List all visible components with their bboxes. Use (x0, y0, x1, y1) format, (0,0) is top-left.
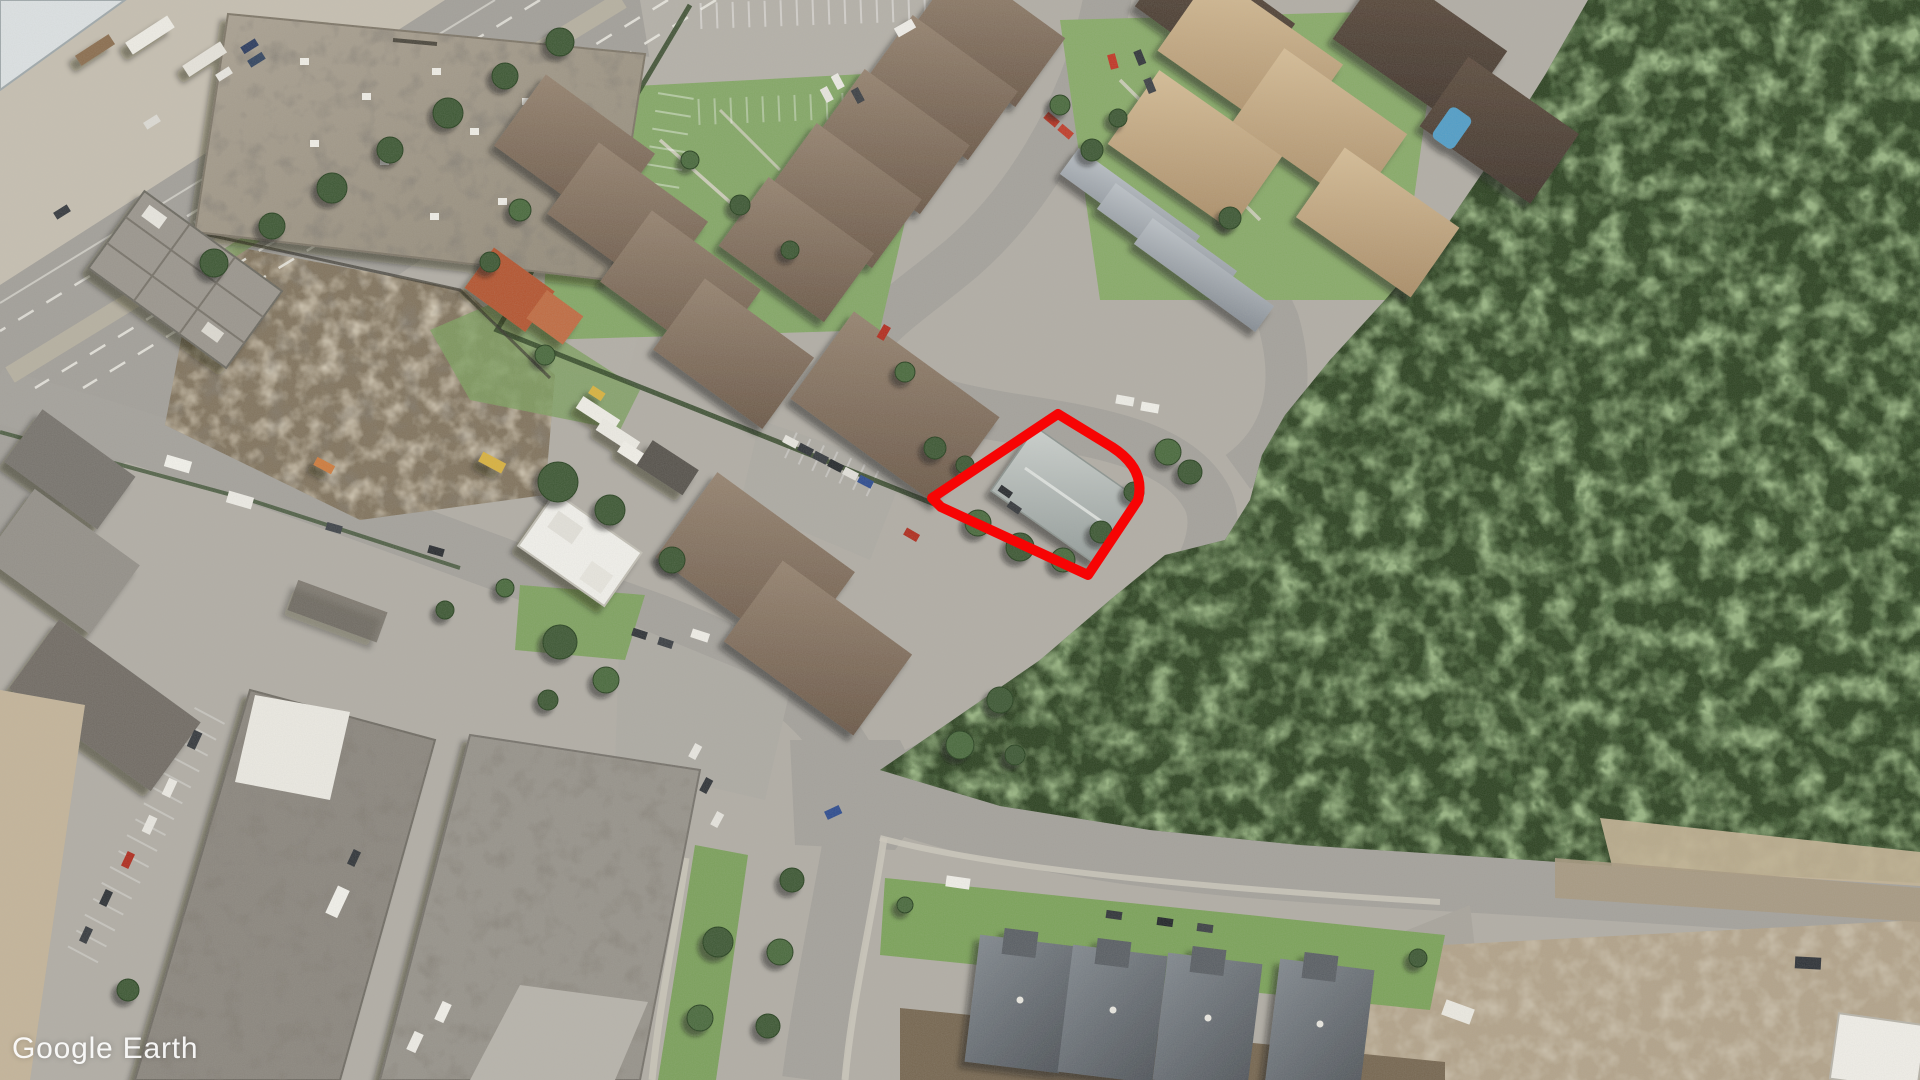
google-earth-watermark: Google Earth (12, 1032, 198, 1066)
image-grain (0, 0, 1920, 1080)
aerial-imagery (0, 0, 1920, 1080)
google-earth-viewport[interactable]: Google Earth (0, 0, 1920, 1080)
